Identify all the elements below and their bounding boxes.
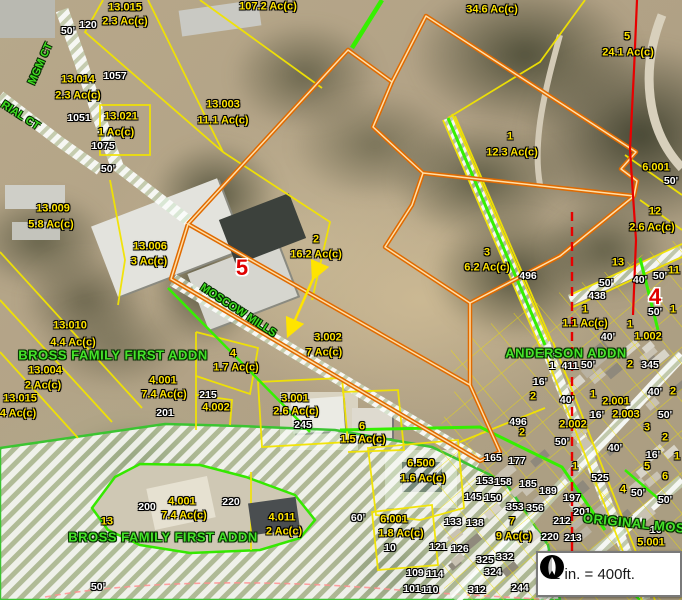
address-label: 16' bbox=[646, 450, 660, 461]
address-label: 324 bbox=[484, 567, 502, 578]
parcel-label: 1.5 Ac(c) bbox=[340, 435, 385, 446]
parcel-label: 4 Ac(c) bbox=[0, 409, 36, 420]
address-label: 50' bbox=[631, 488, 645, 499]
parcel-label: 2 Ac(c) bbox=[266, 527, 302, 538]
parcel-label: 6 bbox=[662, 472, 668, 483]
address-label: 50' bbox=[664, 176, 678, 187]
parcel-label: 4 bbox=[620, 485, 626, 496]
parcel-label: 2 bbox=[670, 387, 676, 398]
parcel-label: 5.001 bbox=[637, 538, 665, 549]
parcel-label: 13.006 bbox=[133, 242, 167, 253]
parcel-label: 1 bbox=[507, 132, 513, 143]
parcel-label: 7 Ac(c) bbox=[306, 348, 342, 359]
dirt-driveway bbox=[649, 15, 682, 168]
parcel-label: 1 Ac(c) bbox=[98, 128, 134, 139]
address-label: 121 bbox=[429, 542, 447, 553]
address-label: 1051 bbox=[67, 113, 90, 124]
subdivision-label: ANDERSON ADDN bbox=[505, 347, 627, 360]
parcel-label: 4.001 bbox=[149, 376, 177, 387]
parcel-label: 2.6 Ac(c) bbox=[273, 407, 318, 418]
parcel-label: 5 bbox=[624, 32, 630, 43]
section-number: 5 bbox=[236, 257, 248, 279]
address-label: 185 bbox=[519, 479, 537, 490]
address-label: 200 bbox=[138, 502, 156, 513]
address-label: 50' bbox=[555, 437, 569, 448]
parcel-label: 13.021 bbox=[104, 112, 138, 123]
address-label: 345 bbox=[641, 360, 659, 371]
address-label: 220 bbox=[222, 497, 240, 508]
address-label: 50' bbox=[653, 271, 667, 282]
parcel-label: 2.3 Ac(c) bbox=[55, 91, 100, 102]
subdivision-label: BROSS FAMILY FIRST ADDN bbox=[68, 531, 257, 544]
address-label: 353 bbox=[506, 502, 524, 513]
parcel-label: 13.014 bbox=[61, 75, 95, 86]
address-label: 40' bbox=[601, 332, 615, 343]
parcel-label: 13.004 bbox=[28, 366, 62, 377]
parcel-label: 1 bbox=[670, 305, 676, 316]
address-label: 50' bbox=[658, 495, 672, 506]
address-label: 126 bbox=[451, 544, 469, 555]
parcel-label: 16.2 Ac(c) bbox=[290, 250, 342, 261]
address-label: 50' bbox=[91, 582, 105, 593]
address-label: 325 bbox=[476, 555, 494, 566]
parcel-label: 4 bbox=[230, 349, 236, 360]
parcel-label: 1.002 bbox=[634, 332, 662, 343]
parcel-label: 34.6 Ac(c) bbox=[466, 5, 518, 16]
address-label: 411 bbox=[562, 361, 579, 372]
address-label: 1075 bbox=[91, 141, 114, 152]
parcel-label: 13 bbox=[101, 517, 113, 528]
parcel-label: 13.015 bbox=[3, 394, 37, 405]
address-label: 133 bbox=[444, 517, 462, 528]
parcel-label: 1.7 Ac(c) bbox=[213, 363, 258, 374]
parcel-label: 5 bbox=[644, 462, 650, 473]
parcel-label: 3.001 bbox=[281, 394, 309, 405]
parcel-label: 5.8 Ac(c) bbox=[28, 220, 73, 231]
scale-box: 1 in. = 400ft. bbox=[536, 551, 682, 597]
parcel-label: 2.002 bbox=[559, 420, 587, 431]
address-label: 244 bbox=[511, 583, 529, 594]
subdivision-label: BROSS FAMILY FIRST ADDN bbox=[18, 349, 207, 362]
parcel-label: 2 bbox=[519, 428, 525, 439]
address-label: 50' bbox=[101, 164, 115, 175]
address-label: 109 bbox=[406, 568, 424, 579]
address-label: 197 bbox=[563, 493, 581, 504]
parcel-label: 12.3 Ac(c) bbox=[486, 148, 538, 159]
parcel-label: 2 bbox=[530, 392, 536, 403]
parcel-label: 1 bbox=[582, 305, 588, 316]
parcel-label: 24.1 Ac(c) bbox=[602, 48, 654, 59]
address-label: 40' bbox=[608, 443, 622, 454]
address-label: 60' bbox=[351, 513, 365, 524]
parcel-label: 13.010 bbox=[53, 321, 87, 332]
address-label: 145 bbox=[464, 492, 482, 503]
parcel-label: 107.2 Ac(c) bbox=[239, 2, 297, 13]
address-label: 312 bbox=[468, 585, 486, 596]
parcel-label: 2 bbox=[662, 433, 668, 444]
parcel-label: 3 Ac(c) bbox=[131, 257, 167, 268]
address-label: 50' bbox=[648, 307, 662, 318]
address-label: 201 bbox=[156, 408, 174, 419]
address-label: 220 bbox=[541, 532, 559, 543]
address-label: 165 bbox=[484, 453, 502, 464]
address-label: 356 bbox=[526, 503, 544, 514]
parcel-label: 2.001 bbox=[602, 397, 630, 408]
address-label: 189 bbox=[539, 486, 557, 497]
dirt-driveway bbox=[538, 35, 560, 185]
address-label: 153 bbox=[476, 476, 494, 487]
parcel-label: 1.1 Ac(c) bbox=[562, 319, 607, 330]
address-label: 40' bbox=[633, 275, 647, 286]
parcel-label: 6.001 bbox=[380, 515, 408, 526]
parcel-label: 11 bbox=[668, 266, 680, 277]
parcel-label: 13.003 bbox=[206, 100, 240, 111]
section-number: 4 bbox=[649, 286, 661, 308]
parcel-label: 9 Ac(c) bbox=[496, 532, 532, 543]
address-label: 1057 bbox=[103, 71, 126, 82]
address-label: 158 bbox=[494, 477, 512, 488]
address-label: 50' bbox=[658, 410, 672, 421]
address-label: 213 bbox=[564, 533, 582, 544]
address-label: 496 bbox=[519, 271, 537, 282]
parcel-label: 1 bbox=[674, 452, 680, 463]
address-label: 101 bbox=[403, 584, 421, 595]
address-label: 438 bbox=[588, 291, 606, 302]
parcel-label: 2.6 Ac(c) bbox=[629, 223, 674, 234]
address-label: 215 bbox=[199, 390, 217, 401]
parcel-label: 3.002 bbox=[314, 333, 342, 344]
address-label: 177 bbox=[508, 456, 526, 467]
address-label: 150 bbox=[484, 493, 502, 504]
address-label: 110 bbox=[422, 585, 439, 596]
address-label: 212 bbox=[553, 516, 571, 527]
parcel-label: 2.003 bbox=[612, 410, 640, 421]
parcel-label: 7 bbox=[509, 517, 515, 528]
parcel-label: 1 bbox=[572, 462, 578, 473]
parcel-label: 6.001 bbox=[642, 163, 670, 174]
parcel-label: 2 bbox=[627, 360, 633, 371]
address-label: 50' bbox=[581, 360, 595, 371]
address-label: 50' bbox=[599, 278, 613, 289]
parcel-label: 2.3 Ac(c) bbox=[102, 17, 147, 28]
parcel-label: 13.015 bbox=[108, 3, 142, 14]
parcel-label: 1 bbox=[627, 320, 633, 331]
address-label: 16' bbox=[533, 377, 547, 388]
parcel-label: 4.001 bbox=[168, 497, 196, 508]
parcel-label: 4.002 bbox=[202, 403, 230, 414]
address-label: 50' bbox=[61, 26, 75, 37]
parcel-label: 11.1 Ac(c) bbox=[198, 116, 249, 127]
parcel-label: 3 bbox=[484, 248, 490, 259]
parcel-label: 3 bbox=[644, 423, 650, 434]
parcel-label: 1.6 Ac(c) bbox=[400, 474, 445, 485]
address-label: 525 bbox=[591, 473, 609, 484]
parcel-label: 7.4 Ac(c) bbox=[141, 390, 186, 401]
address-label: 332 bbox=[496, 552, 514, 563]
parcel-label: 1 bbox=[590, 390, 596, 401]
parcel-label: 6.2 Ac(c) bbox=[464, 263, 509, 274]
address-label: 10 bbox=[384, 543, 396, 554]
address-label: 120 bbox=[79, 20, 97, 31]
address-label: 16' bbox=[590, 410, 604, 421]
map-canvas[interactable]: 13.0152.3 Ac(c)107.2 Ac(c)34.6 Ac(c)524.… bbox=[0, 0, 682, 600]
parcel-label: 12 bbox=[649, 207, 661, 218]
parcel-label: 13.009 bbox=[36, 204, 70, 215]
parcel-label: 4.011 bbox=[269, 513, 296, 524]
road bbox=[117, 166, 190, 222]
address-label: 138 bbox=[466, 518, 484, 529]
measurement-arrow bbox=[291, 272, 316, 329]
address-label: 40' bbox=[648, 387, 662, 398]
address-label: 245 bbox=[294, 420, 312, 431]
parcel-label: 2 bbox=[313, 235, 319, 246]
parcel-label: 13 bbox=[612, 258, 624, 269]
north-arrow-icon bbox=[538, 553, 566, 581]
parcel-label: 6.500 bbox=[407, 459, 435, 470]
address-label: 114 bbox=[427, 569, 444, 580]
parcel-label: 2 Ac(c) bbox=[25, 381, 61, 392]
address-label: 40' bbox=[560, 395, 574, 406]
address-label: 1 bbox=[549, 361, 555, 372]
parcel-label: 7.4 Ac(c) bbox=[161, 511, 206, 522]
parcel-label: 6 bbox=[359, 422, 365, 433]
parcel-label: 1.8 Ac(c) bbox=[378, 529, 423, 540]
